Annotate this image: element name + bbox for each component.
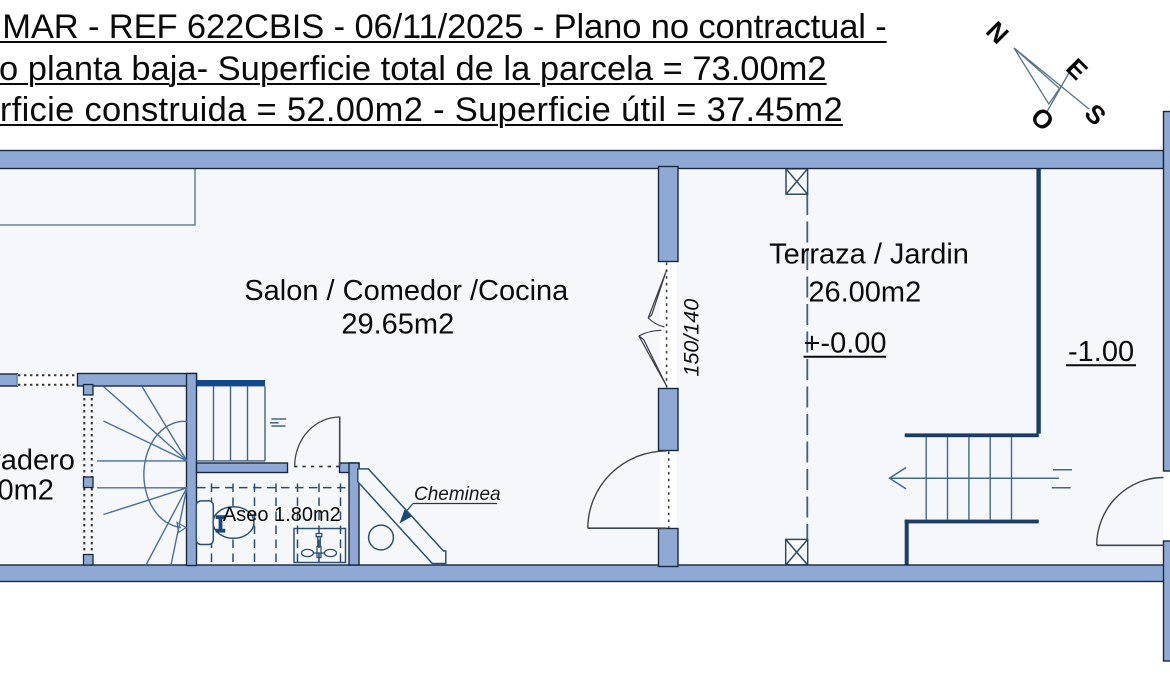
svg-text:Lavadero: Lavadero bbox=[0, 444, 75, 476]
svg-text:Salon / Comedor /Cocina: Salon / Comedor /Cocina bbox=[244, 275, 569, 307]
svg-text:150/140: 150/140 bbox=[680, 299, 704, 377]
svg-text:29.65m2: 29.65m2 bbox=[341, 309, 454, 341]
svg-text:-1.00: -1.00 bbox=[1068, 336, 1134, 368]
svg-text:S: S bbox=[1079, 98, 1112, 131]
svg-text:Terraza / Jardin: Terraza / Jardin bbox=[769, 239, 969, 271]
svg-text:N: N bbox=[980, 15, 1014, 49]
svg-text:+-0.00: +-0.00 bbox=[804, 328, 887, 360]
svg-text:O: O bbox=[1025, 101, 1061, 137]
svg-text:Aseo 1.80m2: Aseo 1.80m2 bbox=[223, 504, 341, 526]
svg-text:Cheminea: Cheminea bbox=[414, 484, 501, 505]
svg-text:26.00m2: 26.00m2 bbox=[808, 277, 921, 309]
svg-text:4.00m2: 4.00m2 bbox=[0, 474, 54, 506]
